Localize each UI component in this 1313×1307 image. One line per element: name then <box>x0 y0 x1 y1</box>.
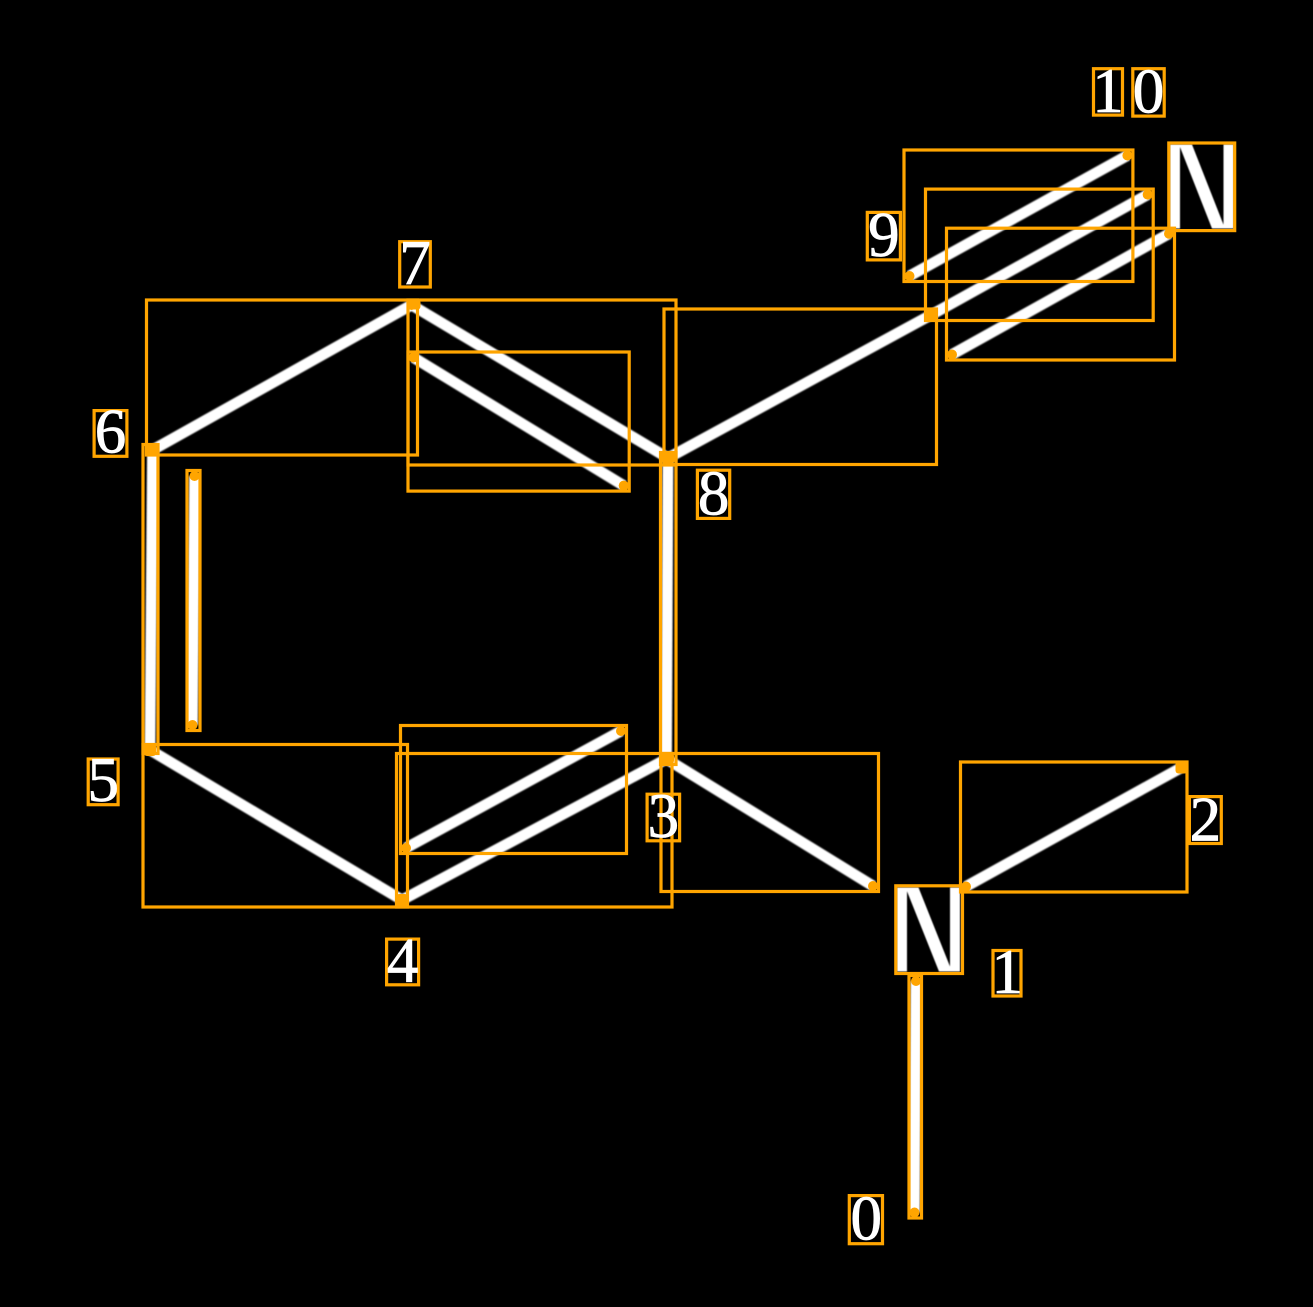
svg-text:8: 8 <box>698 459 730 529</box>
svg-text:6: 6 <box>95 396 127 466</box>
svg-text:2: 2 <box>1190 784 1222 854</box>
svg-text:1: 1 <box>1092 56 1124 126</box>
svg-text:0: 0 <box>850 1184 882 1254</box>
svg-text:1: 1 <box>991 937 1023 1007</box>
svg-text:9: 9 <box>868 200 900 270</box>
svg-text:7: 7 <box>399 228 431 298</box>
svg-text:5: 5 <box>87 745 119 815</box>
svg-text:3: 3 <box>648 781 680 851</box>
svg-text:0: 0 <box>1133 56 1165 126</box>
svg-text:4: 4 <box>387 926 419 996</box>
